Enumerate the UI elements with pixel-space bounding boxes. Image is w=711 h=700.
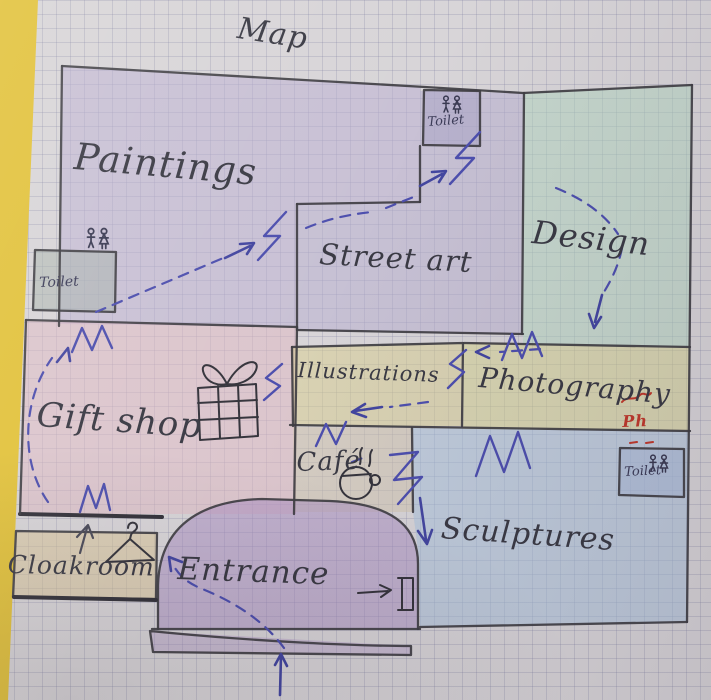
- toilet-label-top: Toilet: [427, 113, 465, 129]
- floor-plan-drawing: [0, 0, 711, 700]
- room-label-illustrations: Illustrations: [297, 360, 440, 386]
- toilet-label-bottom-right: Toilet: [624, 464, 661, 479]
- hand-drawn-museum-map-photo: Map Paintings Street art Design Gift sho…: [0, 0, 711, 700]
- room-label-entrance: Entrance: [177, 554, 330, 590]
- room-label-street-art: Street art: [318, 240, 473, 277]
- room-label-cloakroom: Cloakroom: [8, 552, 155, 580]
- toilet-label-left: Toilet: [39, 275, 79, 290]
- room-label-cafe: Café: [296, 448, 361, 476]
- photography-spelling-correction: Ph: [622, 413, 648, 430]
- room-label-gift-shop: Gift shop: [36, 398, 204, 443]
- entrance-approach-arrow: [275, 654, 287, 695]
